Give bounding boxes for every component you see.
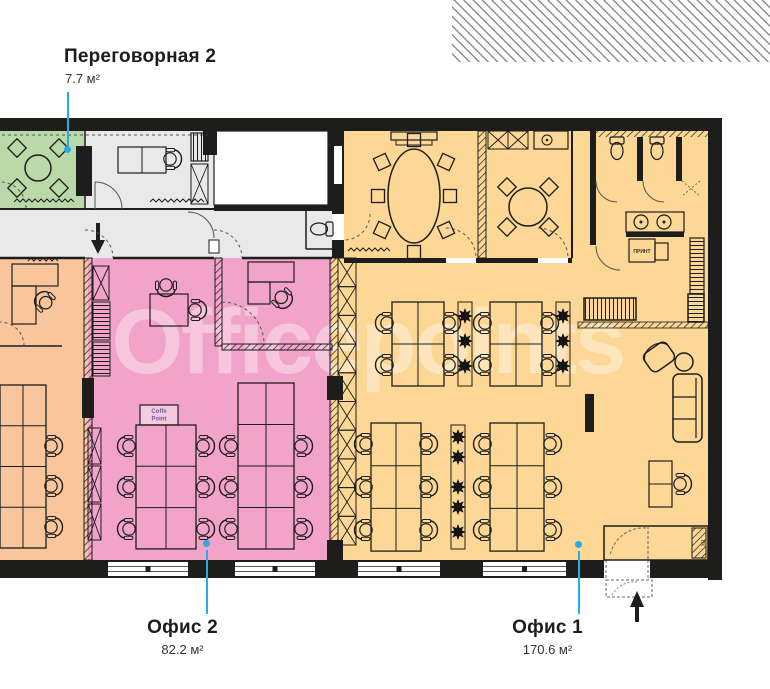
wall-top xyxy=(0,118,722,131)
plan-shape xyxy=(82,378,94,418)
wardrobe xyxy=(93,302,110,340)
office-1-area: 170.6 м² xyxy=(475,642,620,657)
plan-shape xyxy=(612,582,638,595)
plan-shape xyxy=(522,566,527,572)
plan-shape xyxy=(215,258,222,346)
plan-shape xyxy=(676,137,682,181)
plan-shape xyxy=(273,566,278,572)
label-office-1: Офис 1 170.6 м² xyxy=(475,617,620,657)
window xyxy=(334,146,342,184)
office-2-area: 82.2 м² xyxy=(110,642,255,657)
plan-shape xyxy=(538,258,568,263)
office-2-title: Офис 2 xyxy=(110,617,255,639)
wall-hatched xyxy=(578,322,708,328)
sink-icon xyxy=(209,240,219,253)
leader-line-office2 xyxy=(206,550,208,614)
leader-dot-meeting2 xyxy=(64,146,71,153)
wardrobe xyxy=(688,294,704,322)
plan-shape xyxy=(478,131,486,258)
leader-line-office1 xyxy=(578,551,580,614)
coffee-point-label: Point xyxy=(152,417,167,423)
coffee-point-label: Coffe xyxy=(151,409,167,415)
corridor-fill xyxy=(0,209,332,258)
label-office-2: Офис 2 82.2 м² xyxy=(110,617,255,657)
wardrobe xyxy=(93,342,110,376)
plan-shape xyxy=(327,540,343,560)
plan-shape xyxy=(222,344,332,350)
leader-line-meeting2 xyxy=(67,92,69,148)
plan-shape xyxy=(596,131,708,137)
floorplan-canvas: Officepoints Coffe Point ПРИНТ ПК Перего… xyxy=(0,0,770,689)
plan-shape xyxy=(640,221,643,224)
void-area xyxy=(214,131,328,205)
printer-label: ПРИНТ xyxy=(633,249,650,255)
tv-screen xyxy=(585,394,594,432)
plan-shape xyxy=(397,566,402,572)
plan-shape xyxy=(590,131,596,245)
plan-shape xyxy=(327,376,343,400)
leader-dot-office2 xyxy=(203,540,210,547)
entry-box-label: ПК xyxy=(699,540,705,547)
wardrobe xyxy=(191,133,208,161)
plan-shape xyxy=(637,137,643,181)
label-meeting-room-2: Переговорная 2 7.7 м² xyxy=(64,46,216,86)
meeting-room-2-title: Переговорная 2 xyxy=(64,46,216,68)
entry-arrow xyxy=(635,607,639,622)
radiator xyxy=(690,238,704,294)
wall-hatched xyxy=(330,258,338,560)
entrance-opening xyxy=(604,560,650,578)
plan-shape xyxy=(146,566,151,572)
wall-cabinet xyxy=(76,146,92,196)
wall-right xyxy=(708,118,722,580)
meeting-room-2-area: 7.7 м² xyxy=(65,71,216,86)
plan-shape xyxy=(446,258,476,263)
plan-shape xyxy=(546,139,549,142)
corridor-arrow xyxy=(96,223,100,241)
leader-dot-office1 xyxy=(575,541,582,548)
plan-shape xyxy=(663,221,666,224)
office-1-title: Офис 1 xyxy=(475,617,620,639)
room-orange-fill xyxy=(0,258,88,560)
plan-shape xyxy=(626,232,684,237)
floor-plan: Officepoints Coffe Point ПРИНТ ПК xyxy=(0,0,770,689)
wardrobe xyxy=(584,298,636,320)
plan-shape xyxy=(332,214,344,240)
entry-arrow xyxy=(630,591,644,607)
